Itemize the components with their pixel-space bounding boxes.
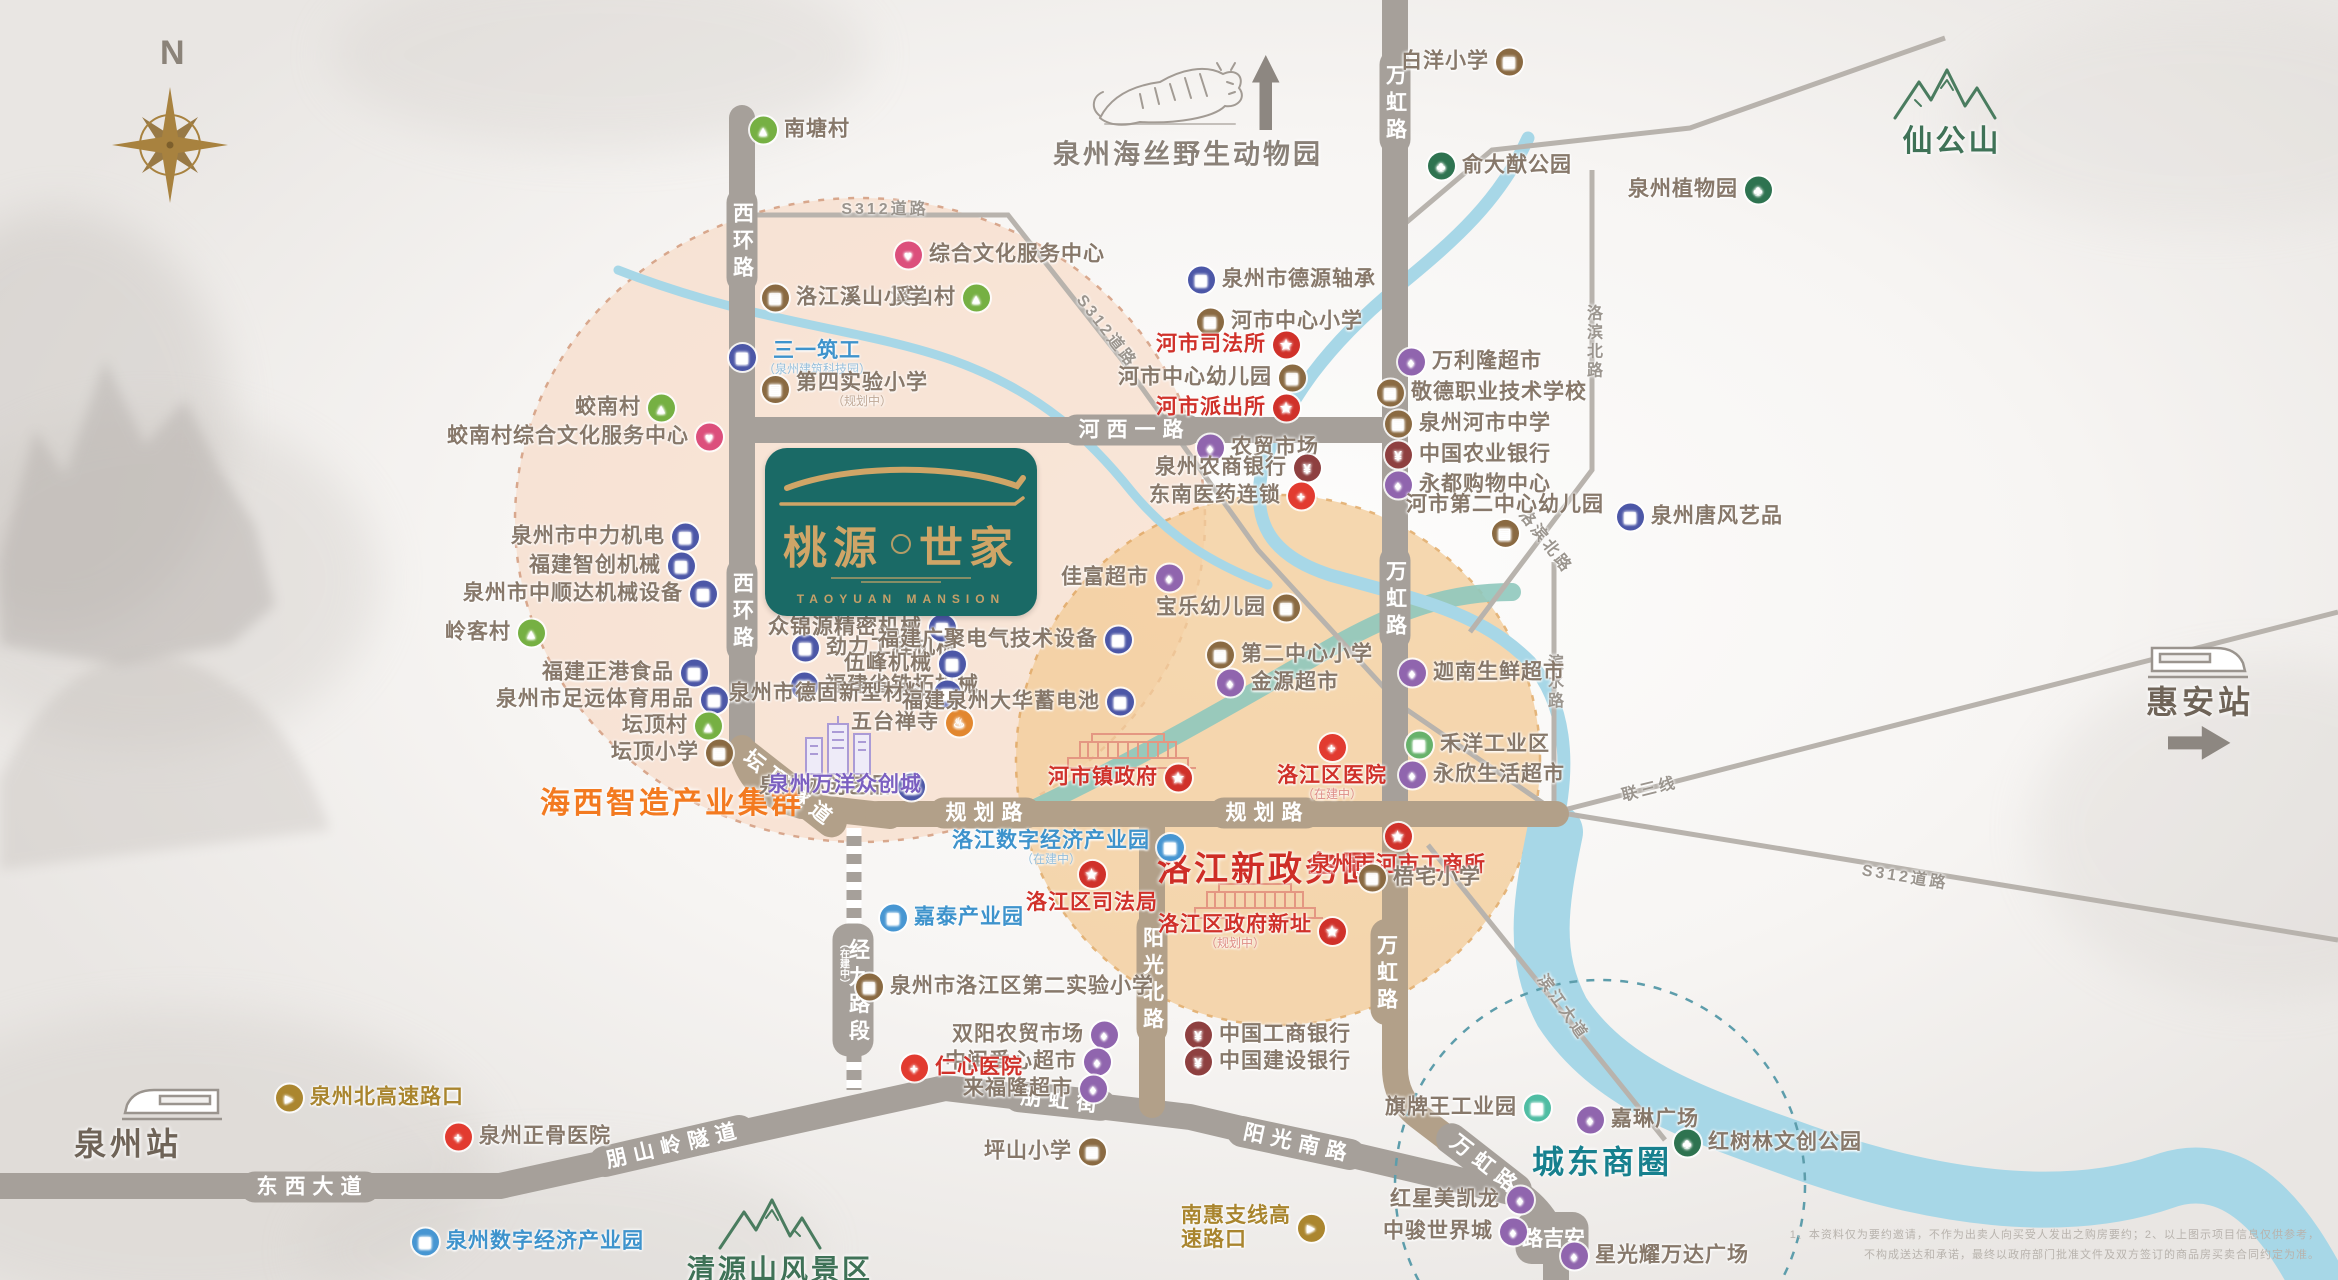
hospital-icon: + (901, 1055, 928, 1082)
poi-village: ▲蛟南村 (575, 395, 675, 422)
school-icon: ▤ (1496, 49, 1523, 76)
bank-icon: ¥ (1294, 455, 1321, 482)
park-icon: ♣ (1428, 153, 1455, 180)
poi-bank: ¥中国工商银行 (1185, 1022, 1351, 1049)
road-label: 洛滨北路 (1579, 290, 1605, 391)
poi-highway: ►泉州北高速路口 (276, 1085, 464, 1112)
road-label: S312道路 (841, 202, 928, 218)
road-label-text: 东西大道 (257, 1176, 369, 1199)
logo-seal-icon (891, 534, 911, 554)
poi-label: 洛江区司法局 (1026, 891, 1158, 914)
poi-label: 嘉泰产业园 (914, 906, 1024, 929)
road-label: 规划路 (1209, 798, 1322, 829)
hospital-icon: + (1288, 483, 1315, 510)
highway-icon: ► (1298, 1215, 1325, 1242)
poi-hospital: +东南医药连锁 (1149, 483, 1315, 510)
poi-school: ▤泉州市洛江区第二实验小学 (856, 974, 1154, 1001)
poi-shop: ♦红星美凯龙 (1390, 1187, 1534, 1214)
shop-icon: ♦ (1500, 1219, 1527, 1246)
poi-label: 洛江区医院 (1277, 764, 1387, 787)
station-label: 泉州站 (74, 1119, 182, 1165)
poi-label: 南惠支线高速路口 (1181, 1204, 1291, 1251)
zone-label: 城东商圈 (1532, 1137, 1672, 1183)
poi-factory: ▦伍峰机械 (844, 651, 966, 678)
poi-hospital: +仁心医院 (901, 1055, 1023, 1082)
factory-icon: ▦ (681, 660, 708, 687)
park-icon: ♣ (1674, 1130, 1701, 1157)
school-icon: ▤ (706, 740, 733, 767)
road-label-text: 万虹路 (1384, 64, 1407, 145)
poi-village: ▲南塘村 (750, 117, 850, 144)
factory-icon: ▦ (701, 687, 728, 714)
poi-school: ▤梧宅小学 (1359, 865, 1481, 892)
culture-icon: ♥ (696, 424, 723, 451)
poi-label: 宝乐幼儿园 (1156, 596, 1266, 619)
logo-roof-strokes-icon (765, 448, 1037, 510)
shop-icon: ♦ (1577, 1107, 1604, 1134)
school-icon: ▤ (856, 974, 883, 1001)
factory-icon: ▦ (1617, 504, 1644, 531)
poi-label: 河市中心小学 (1231, 310, 1363, 333)
poi-label: 泉州市德源轴承 (1222, 268, 1376, 291)
poi-hospital: +洛江区医院（在建中） (1277, 734, 1387, 802)
poi-culture: ♥综合文化服务中心 (895, 242, 1105, 269)
school-icon: ▤ (1279, 365, 1306, 392)
disclaimer-text: 1、本资料仅为要约邀请，不作为出卖人向买受人发出之购房要约；2、以上图示项目信息… (1790, 1226, 2320, 1266)
poi-label: 洛江溪山小学 (796, 286, 928, 309)
poi-shop: ♦万利隆超市 (1398, 349, 1542, 376)
poi-label: 嘉琳广场 (1611, 1108, 1699, 1131)
poi-bank: ¥中国农业银行 (1385, 442, 1551, 469)
poi-factory: ▦泉州市中顺达机械设备 (463, 581, 717, 608)
bluepark-icon: ▦ (1157, 835, 1184, 862)
school-icon: ▤ (1273, 595, 1300, 622)
poi-label: 敬德职业技术学校 (1411, 381, 1587, 404)
poi-label: 福建泉州大华蓄电池 (902, 690, 1100, 713)
poi-village: ▲岭客村 (445, 620, 545, 647)
poi-gov: ★河市镇政府 (1048, 765, 1192, 792)
poi-bank: ¥泉州农商银行 (1155, 455, 1321, 482)
road-label-text: 洛滨北路 (1584, 305, 1601, 381)
bank-icon: ¥ (1185, 1049, 1212, 1076)
shop-icon: ♦ (1080, 1076, 1107, 1103)
poi-label: 河市司法所 (1156, 333, 1266, 356)
poi-shop: ♦永欣生活超市 (1399, 762, 1565, 789)
poi-label: 泉州市足远体育用品 (496, 688, 694, 711)
bluepark-icon: ▦ (412, 1229, 439, 1256)
compass-letter: N (160, 34, 185, 72)
poi-label: 旗牌王工业园 (1385, 1096, 1517, 1119)
poi-label: 福建智创机械 (529, 554, 661, 577)
poi-label: 泉州北高速路口 (310, 1086, 464, 1109)
poi-label: 红星美凯龙 (1390, 1188, 1500, 1211)
factory-icon: ▦ (1107, 689, 1134, 716)
road-label-text: 西环路 (731, 202, 754, 283)
poi-label: 坪山小学 (984, 1140, 1072, 1163)
poi-label: 白洋小学 (1401, 50, 1489, 73)
poi-sublabel: （在建中） (1277, 788, 1387, 802)
poi-label: 金源超市 (1251, 671, 1339, 694)
poi-label: 仁心医院 (935, 1056, 1023, 1079)
village-icon: ▲ (695, 713, 722, 740)
poi-label: 南塘村 (784, 118, 850, 141)
poi-factory: ▦泉州唐风艺品 (1617, 504, 1783, 531)
poi-shop: ♦中骏世界城 (1383, 1219, 1527, 1246)
school-icon: ▤ (1079, 1139, 1106, 1166)
poi-village: ▲坛顶村 (622, 713, 722, 740)
poi-label: 泉州万洋众创城 (768, 773, 922, 796)
poi-factory: ▦福建广聚电气技术设备 (878, 627, 1132, 654)
hospital-icon: + (445, 1124, 472, 1151)
landmark-label: 清源山风景区 (687, 1248, 873, 1280)
logo-english-name: TAOYUAN MANSION (797, 592, 1005, 606)
poi-label: 泉州正骨医院 (479, 1125, 611, 1148)
poi-label: 蛟南村 (575, 396, 641, 419)
gov-icon: ★ (1165, 765, 1192, 792)
bank-icon: ¥ (1185, 1022, 1212, 1049)
poi-factory: ▦泉州市德源轴承 (1188, 267, 1376, 294)
factory-icon: ▦ (1188, 267, 1215, 294)
poi-label: 河市中心幼儿园 (1118, 366, 1272, 389)
shop-icon: ♦ (1399, 762, 1426, 789)
factory-icon: ▦ (939, 651, 966, 678)
poi-label: 泉州农商银行 (1155, 456, 1287, 479)
poi-label: 东南医药连锁 (1149, 484, 1281, 507)
poi-bluepark: ▦泉州数字经济产业园 (412, 1229, 644, 1256)
bluepark-icon: ▦ (880, 905, 907, 932)
poi-label: 中国建设银行 (1219, 1050, 1351, 1073)
road-label-text: 西环路 (731, 572, 754, 653)
poi-label: 洛江数字经济产业园 (952, 829, 1150, 852)
poi-school: ▤河市第二中心幼儿园 (1406, 493, 1604, 547)
poi-label: 永欣生活超市 (1433, 763, 1565, 786)
school-icon: ▤ (1207, 642, 1234, 669)
location-map: N (0, 0, 2338, 1280)
poi-label: 泉州河市中学 (1419, 412, 1551, 435)
poi-label: 泉州市中顺达机械设备 (463, 582, 683, 605)
poi-bank: ¥中国建设银行 (1185, 1049, 1351, 1076)
poi-school: ▤河市中心幼儿园 (1118, 365, 1306, 392)
road-label-text: 河西一路 (1079, 419, 1191, 442)
poi-label: 中国农业银行 (1419, 443, 1551, 466)
village-icon: ▲ (518, 620, 545, 647)
poi-school: ▤泉州河市中学 (1385, 411, 1551, 438)
bank-icon: ¥ (1385, 442, 1412, 469)
village-icon: ▲ (963, 285, 990, 312)
poi-factory: ▦泉州市足远体育用品 (496, 687, 728, 714)
project-logo: 桃源 世家 TAOYUAN MANSION (765, 448, 1037, 616)
poi-label: 中骏世界城 (1383, 1220, 1493, 1243)
poi-label: 泉州唐风艺品 (1651, 505, 1783, 528)
shop-icon: ♦ (1507, 1187, 1534, 1214)
village-icon: ▲ (648, 395, 675, 422)
poi-school: ▤第二中心小学 (1207, 642, 1373, 669)
tealpark-icon: ▦ (1524, 1095, 1551, 1122)
station-label: 惠安站 (2146, 677, 2254, 723)
factory-icon: ▦ (668, 553, 695, 580)
poi-label: 伍峰机械 (844, 652, 932, 675)
poi-shop: ♦星光耀万达广场 (1561, 1243, 1749, 1270)
poi-label: 第二中心小学 (1241, 643, 1373, 666)
indpark-icon: ▦ (1406, 732, 1433, 759)
disclaimer-line2: 不构成送达和承诺，最终以政府部门批准文件及双方签订的商品房买卖合同约定为准。 (1790, 1246, 2320, 1266)
hospital-icon: + (1319, 734, 1346, 761)
poi-label: 红树林文创公园 (1708, 1131, 1862, 1154)
poi-label: 双阳农贸市场 (952, 1023, 1084, 1046)
gov-icon: ★ (1079, 861, 1106, 888)
factory-icon: ▦ (729, 345, 756, 372)
poi-label: 迦南生鲜超市 (1433, 661, 1565, 684)
landmark-label: 仙公山 (1903, 116, 2002, 160)
poi-gov: ★洛江区司法局 (1026, 861, 1158, 915)
poi-label: 河市第二中心幼儿园 (1406, 493, 1604, 516)
poi-park: ♣俞大猷公园 (1428, 153, 1572, 180)
poi-label: 星光耀万达广场 (1595, 1244, 1749, 1267)
road-label: 东西大道 (240, 1172, 381, 1203)
poi-gov: ★洛江区政府新址（规划中） (1158, 913, 1346, 951)
poi-school: ▤洛江溪山小学 (762, 285, 928, 312)
poi-school: ▤坪山小学 (984, 1139, 1106, 1166)
school-icon: ▤ (762, 285, 789, 312)
shop-icon: ♦ (1217, 670, 1244, 697)
factory-icon: ▦ (672, 524, 699, 551)
poi-label: 蛟南村综合文化服务中心 (447, 425, 689, 448)
road-label-text: 规划路 (1226, 802, 1310, 825)
logo-water-strokes-icon (801, 576, 1001, 584)
poi-sublabel: （规划中） (1158, 937, 1312, 951)
factory-icon: ▦ (1105, 627, 1132, 654)
poi-label: 禾洋工业区 (1440, 733, 1550, 756)
road-label-text: 万虹路 (1375, 934, 1398, 1015)
road-label: 西环路 (727, 557, 758, 663)
highway-icon: ► (276, 1085, 303, 1112)
factory-icon: ▦ (690, 581, 717, 608)
shop-icon: ♦ (1399, 660, 1426, 687)
poi-label: 泉州数字经济产业园 (446, 1230, 644, 1253)
poi-label: 万利隆超市 (1432, 350, 1542, 373)
poi-label: 泉州市中力机电 (511, 525, 665, 548)
road-label: 西环路 (727, 187, 758, 293)
poi-shop: ♦双阳农贸市场 (952, 1022, 1118, 1049)
poi-label: 梧宅小学 (1393, 866, 1481, 889)
shop-icon: ♦ (1156, 565, 1183, 592)
poi-hospital: +泉州正骨医院 (445, 1124, 611, 1151)
poi-factory: ▦福建智创机械 (529, 553, 695, 580)
logo-cn-part1: 桃源 (783, 512, 883, 576)
poi-sublabel: （规划中） (796, 395, 928, 409)
poi-factory: ▦福建正港食品 (542, 660, 708, 687)
poi-label: 福建广聚电气技术设备 (878, 628, 1098, 651)
poi-school: ▤敬德职业技术学校 (1377, 380, 1587, 407)
school-icon: ▤ (1385, 411, 1412, 438)
shop-icon: ♦ (1398, 349, 1425, 376)
road-label-text: S312道路 (841, 201, 928, 218)
poi-park: ♣红树林文创公园 (1674, 1130, 1862, 1157)
poi-tealpark: ▦旗牌王工业园 (1385, 1095, 1551, 1122)
disclaimer-line1: 1、本资料仅为要约邀请，不作为出卖人向买受人发出之购房要约；2、以上图示项目信息… (1790, 1226, 2320, 1246)
poi-label: 坛顶村 (622, 714, 688, 737)
poi-label: 岭客村 (445, 621, 511, 644)
poi-bluepark: ▦嘉泰产业园 (880, 905, 1024, 932)
poi-school: ▤坛顶小学 (611, 740, 733, 767)
poi-factory: ▦福建泉州大华蓄电池 (902, 689, 1134, 716)
poi-label: 三一筑工 (773, 339, 861, 362)
poi-school: ▤宝乐幼儿园 (1156, 595, 1300, 622)
poi-label: 第四实验小学 (796, 371, 928, 394)
gov-icon: ★ (1319, 919, 1346, 946)
shop-icon: ♦ (1084, 1049, 1111, 1076)
road-label-text: 万虹路 (1384, 560, 1407, 641)
shop-icon: ♦ (1561, 1243, 1588, 1270)
poi-shop: ♦佳富超市 (1061, 565, 1183, 592)
compass-rose-icon: N (112, 34, 228, 203)
poi-gov: ★河市司法所 (1156, 332, 1300, 359)
gov-icon: ★ (1273, 332, 1300, 359)
school-icon: ▤ (1492, 520, 1519, 547)
poi-label: 洛江区政府新址 (1158, 913, 1312, 936)
landmark-label: 泉州海丝野生动物园 (1053, 133, 1323, 172)
poi-school: ▤白洋小学 (1401, 49, 1523, 76)
poi-school: ▤第四实验小学（规划中） (762, 371, 928, 409)
school-icon: ▤ (762, 377, 789, 404)
poi-park: ♣泉州植物园 (1628, 177, 1772, 204)
poi-label: 泉州市洛江区第二实验小学 (890, 975, 1154, 998)
road-label: 万虹路 (1371, 919, 1402, 1025)
village-icon: ▲ (750, 117, 777, 144)
poi-none: 泉州万洋众创城 (768, 773, 922, 797)
park-icon: ♣ (1745, 177, 1772, 204)
logo-cn-part2: 世家 (919, 512, 1019, 576)
poi-indpark: ▦禾洋工业区 (1406, 732, 1550, 759)
poi-highway: ►南惠支线高速路口 (1181, 1204, 1325, 1252)
logo-chinese-name: 桃源 世家 (783, 512, 1019, 576)
gov-icon: ★ (1385, 823, 1412, 850)
zoo-direction-arrow-icon (1252, 55, 1280, 130)
road-label: 万虹路 (1380, 545, 1411, 651)
poi-label: 河市镇政府 (1048, 766, 1158, 789)
poi-label: 泉州植物园 (1628, 178, 1738, 201)
poi-label: 河市派出所 (1156, 396, 1266, 419)
shop-icon: ♦ (1091, 1022, 1118, 1049)
poi-label: 坛顶小学 (611, 741, 699, 764)
poi-gov: ★河市派出所 (1156, 395, 1300, 422)
road-label: 规划路 (929, 798, 1042, 829)
school-icon: ▤ (1359, 865, 1386, 892)
poi-label: 佳富超市 (1061, 566, 1149, 589)
road-label-text: 规划路 (946, 802, 1030, 825)
poi-culture: ♥蛟南村综合文化服务中心 (447, 424, 723, 451)
school-icon: ▤ (1377, 380, 1404, 407)
poi-factory: ▦泉州市中力机电 (511, 524, 699, 551)
poi-label: 福建正港食品 (542, 661, 674, 684)
poi-shop: ♦金源超市 (1217, 670, 1339, 697)
poi-label: 俞大猷公园 (1462, 154, 1572, 177)
poi-label: 综合文化服务中心 (929, 243, 1105, 266)
culture-icon: ♥ (895, 242, 922, 269)
poi-shop: ♦迦南生鲜超市 (1399, 660, 1565, 687)
poi-label: 中国工商银行 (1219, 1023, 1351, 1046)
gov-icon: ★ (1273, 395, 1300, 422)
poi-label: 泉州市德固新型材料 (729, 682, 927, 705)
tiger-illustration-icon (1094, 63, 1242, 125)
